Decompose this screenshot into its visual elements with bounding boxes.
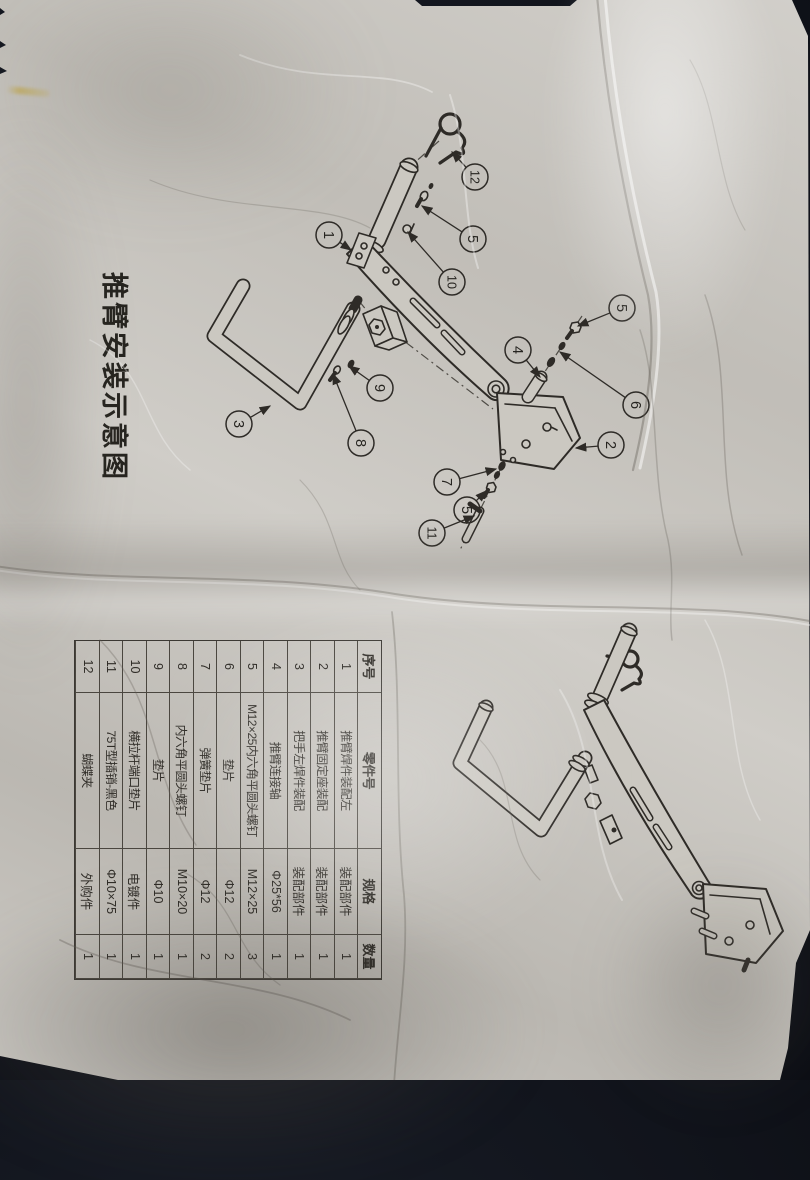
table-cell: 电镀件 xyxy=(123,849,147,935)
table-cell: 2 xyxy=(217,935,241,979)
table-cell: 把手左焊件装配 xyxy=(287,693,311,849)
table-cell: Φ12 xyxy=(193,849,217,935)
svg-text:3: 3 xyxy=(230,420,246,428)
table-header-cell: 零件号 xyxy=(358,693,382,849)
table-cell: 6 xyxy=(217,641,241,693)
table-cell: 1 xyxy=(123,935,147,979)
assembled-handle xyxy=(460,701,591,830)
callout-2: 2 xyxy=(576,432,624,458)
svg-text:10: 10 xyxy=(445,275,459,289)
photo-background: { "photo": { "background_color": "#12151… xyxy=(0,0,810,1080)
table-cell: 垫片 xyxy=(217,693,241,849)
screw-5-right xyxy=(567,322,581,338)
svg-text:5: 5 xyxy=(458,506,474,514)
svg-text:11: 11 xyxy=(425,527,439,540)
svg-text:7: 7 xyxy=(438,478,454,486)
table-cell: 11 xyxy=(99,641,123,693)
callout-5: 5 xyxy=(578,295,635,326)
table-cell: 蝴蝶夹 xyxy=(76,693,100,849)
table-cell: 装配部件 xyxy=(334,849,358,935)
table-cell: 垫片 xyxy=(146,693,170,849)
table-cell: 1 xyxy=(146,935,170,979)
table-cell: 1 xyxy=(334,641,358,693)
mount-bracket xyxy=(497,393,580,469)
assembled-diagram xyxy=(460,624,783,970)
table-cell: 75T型插销-黑色 xyxy=(99,693,123,849)
table-header-cell: 规格 xyxy=(358,849,382,935)
exploded-diagram: 12510198354627511 xyxy=(214,114,649,550)
table-header-cell: 序号 xyxy=(358,641,382,693)
screw-5-top xyxy=(417,182,434,206)
table-cell: 12 xyxy=(76,641,100,693)
table-cell: 外购件 xyxy=(76,849,100,935)
table-cell: 推臂焊件装配左 xyxy=(334,693,358,849)
callout-1: 1 xyxy=(316,222,351,250)
table-cell: 1 xyxy=(334,935,358,979)
svg-text:5: 5 xyxy=(613,304,629,312)
table-cell: 8 xyxy=(170,641,194,693)
table-cell: M12×25内六角平圆头螺钉 xyxy=(240,693,264,849)
svg-text:1: 1 xyxy=(320,231,336,239)
table-cell: 1 xyxy=(311,935,335,979)
screw-8 xyxy=(330,365,342,380)
table-cell: 1 xyxy=(287,935,311,979)
assembled-clamp xyxy=(585,793,622,844)
callout-4: 4 xyxy=(505,337,540,377)
table-cell: M12×25 xyxy=(240,849,264,935)
table-cell: 3 xyxy=(240,935,264,979)
table-header-cell: 数量 xyxy=(358,935,382,979)
assembled-bracket xyxy=(694,884,783,970)
svg-text:6: 6 xyxy=(627,401,643,409)
table-cell: M10×20 xyxy=(170,849,194,935)
svg-text:12: 12 xyxy=(468,170,482,184)
table-cell: 4 xyxy=(264,641,288,693)
callout-6: 6 xyxy=(560,352,649,418)
parts-table: 序号零件号规格数量1推臂焊件装配左装配部件12推臂固定座装配装配部件13把手左焊… xyxy=(75,640,383,980)
table-cell: 2 xyxy=(311,641,335,693)
table-cell: 装配部件 xyxy=(311,849,335,935)
svg-text:2: 2 xyxy=(602,441,618,449)
table-cell: 1 xyxy=(76,935,100,979)
table-cell: Φ25*56 xyxy=(264,849,288,935)
butterfly-clip xyxy=(426,114,465,163)
table-cell: 3 xyxy=(287,641,311,693)
svg-text:9: 9 xyxy=(371,384,387,392)
callout-5: 5 xyxy=(422,206,486,252)
table-cell: 1 xyxy=(264,935,288,979)
svg-text:8: 8 xyxy=(352,439,368,447)
screw-5-bottom xyxy=(484,483,496,498)
callout-9: 9 xyxy=(349,366,393,401)
table-cell: 2 xyxy=(193,935,217,979)
table-cell: 推臂固定座装配 xyxy=(311,693,335,849)
table-cell: 推臂连接轴 xyxy=(264,693,288,849)
callout-10: 10 xyxy=(408,232,465,295)
table-cell: 5 xyxy=(240,641,264,693)
table-cell: 装配部件 xyxy=(287,849,311,935)
table-cell: 1 xyxy=(99,935,123,979)
callout-3: 3 xyxy=(226,406,270,437)
washer-7 xyxy=(493,460,508,480)
table-cell: Φ10×75 xyxy=(99,849,123,935)
table-cell: 内六角平圆头螺钉 xyxy=(170,693,194,849)
handle-weldment xyxy=(214,286,358,403)
table-cell: 1 xyxy=(170,935,194,979)
svg-text:5: 5 xyxy=(464,235,480,243)
svg-text:4: 4 xyxy=(509,346,525,354)
table-cell: 弹簧垫片 xyxy=(193,693,217,849)
washer-6 xyxy=(545,355,557,368)
callout-12: 12 xyxy=(452,152,488,190)
table-cell: Φ12 xyxy=(217,849,241,935)
table-cell: 10 xyxy=(123,641,147,693)
table-cell: 9 xyxy=(146,641,170,693)
table-cell: 7 xyxy=(193,641,217,693)
page-title: 推臂安装示意图 xyxy=(97,272,136,482)
paper-sheet: 12510198354627511 xyxy=(0,0,810,1080)
assembled-arm xyxy=(583,624,710,898)
washer-plain xyxy=(557,341,567,352)
table-cell: 横拉杆端口垫片 xyxy=(123,693,147,849)
table-cell: Φ10 xyxy=(146,849,170,935)
